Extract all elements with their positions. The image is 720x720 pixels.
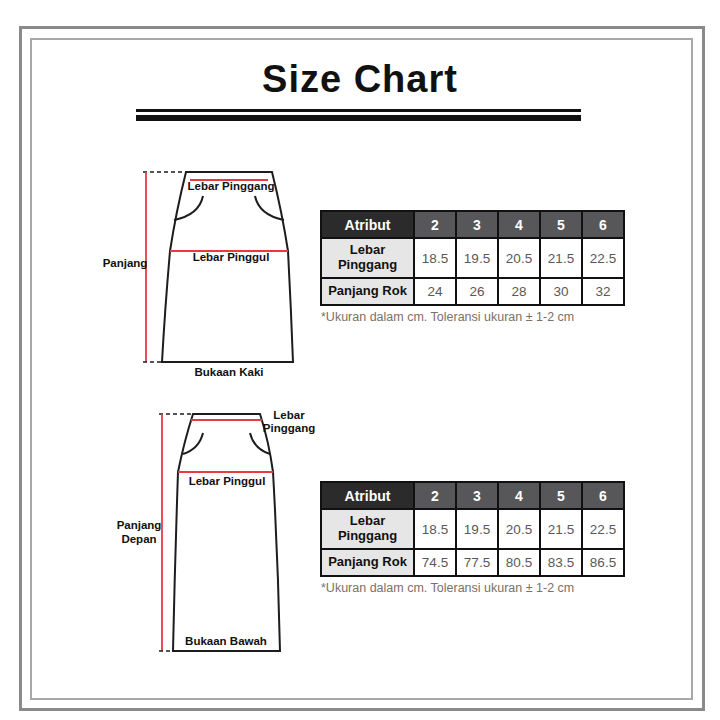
value-cell: 74.5	[414, 549, 456, 576]
header-cell-size: 2	[414, 482, 456, 509]
value-cell: 22.5	[582, 238, 624, 278]
header-cell-size: 6	[582, 482, 624, 509]
waist-label-line2: Pinggang	[263, 422, 315, 434]
header-cell-size: 6	[582, 211, 624, 238]
row-label-cell: Panjang Rok	[321, 549, 414, 576]
value-cell: 21.5	[540, 509, 582, 549]
header-cell-size: 2	[414, 211, 456, 238]
hem-label: Bukaan Bawah	[185, 635, 267, 647]
value-cell: 77.5	[456, 549, 498, 576]
long-skirt-size-table: Atribut 2 3 4 5 6 Lebar Pinggang 18.5 19…	[320, 481, 625, 577]
header-cell-size: 3	[456, 211, 498, 238]
header-cell-size: 4	[498, 482, 540, 509]
short-skirt-size-table: Atribut 2 3 4 5 6 Lebar Pinggang 18.5 19…	[320, 210, 625, 306]
value-cell: 28	[498, 278, 540, 305]
table-header-row: Atribut 2 3 4 5 6	[321, 211, 624, 238]
value-cell: 18.5	[414, 509, 456, 549]
header-cell-atribut: Atribut	[321, 211, 414, 238]
skirt-outline	[162, 172, 293, 362]
value-cell: 30	[540, 278, 582, 305]
row-label-cell: Lebar Pinggang	[321, 509, 414, 549]
tolerance-note: *Ukuran dalam cm. Toleransi ukuran ± 1-2…	[321, 310, 621, 324]
header-cell-size: 4	[498, 211, 540, 238]
header-cell-size: 5	[540, 482, 582, 509]
value-cell: 20.5	[498, 238, 540, 278]
header-cell-atribut: Atribut	[321, 482, 414, 509]
row-label-cell: Lebar Pinggang	[321, 238, 414, 278]
value-cell: 80.5	[498, 549, 540, 576]
table-row: Panjang Rok 74.5 77.5 80.5 83.5 86.5	[321, 549, 624, 576]
waist-label-line1: Lebar	[273, 409, 305, 421]
value-cell: 21.5	[540, 238, 582, 278]
value-cell: 86.5	[582, 549, 624, 576]
header-cell-size: 5	[540, 211, 582, 238]
table-header-row: Atribut 2 3 4 5 6	[321, 482, 624, 509]
skirt-outline	[173, 414, 280, 651]
value-cell: 18.5	[414, 238, 456, 278]
table-row: Lebar Pinggang 18.5 19.5 20.5 21.5 22.5	[321, 238, 624, 278]
table-row: Panjang Rok 24 26 28 30 32	[321, 278, 624, 305]
value-cell: 32	[582, 278, 624, 305]
long-skirt-diagram: Lebar Pinggang Lebar Pinggul Panjang Dep…	[100, 400, 320, 670]
row-label-cell: Panjang Rok	[321, 278, 414, 305]
value-cell: 24	[414, 278, 456, 305]
value-cell: 26	[456, 278, 498, 305]
table-row: Lebar Pinggang 18.5 19.5 20.5 21.5 22.5	[321, 509, 624, 549]
hem-label: Bukaan Kaki	[194, 366, 263, 378]
length-label: Panjang	[103, 257, 148, 269]
page-title: Size Chart	[0, 58, 720, 101]
short-skirt-diagram: Lebar Pinggang Lebar Pinggul Panjang Buk…	[100, 160, 320, 390]
tolerance-note: *Ukuran dalam cm. Toleransi ukuran ± 1-2…	[321, 581, 621, 595]
length-label-line2: Depan	[121, 533, 156, 545]
header-cell-size: 3	[456, 482, 498, 509]
title-underline-thin	[136, 109, 581, 112]
value-cell: 83.5	[540, 549, 582, 576]
value-cell: 19.5	[456, 238, 498, 278]
size-chart-page: Size Chart Lebar Pinggang Lebar Pinggul …	[0, 0, 720, 720]
title-underline-thick	[136, 115, 581, 121]
length-label-line1: Panjang	[117, 519, 162, 531]
value-cell: 20.5	[498, 509, 540, 549]
waist-label: Lebar Pinggang	[188, 180, 275, 192]
value-cell: 19.5	[456, 509, 498, 549]
value-cell: 22.5	[582, 509, 624, 549]
hip-label: Lebar Pinggul	[193, 251, 270, 263]
hip-label: Lebar Pinggul	[189, 475, 266, 487]
